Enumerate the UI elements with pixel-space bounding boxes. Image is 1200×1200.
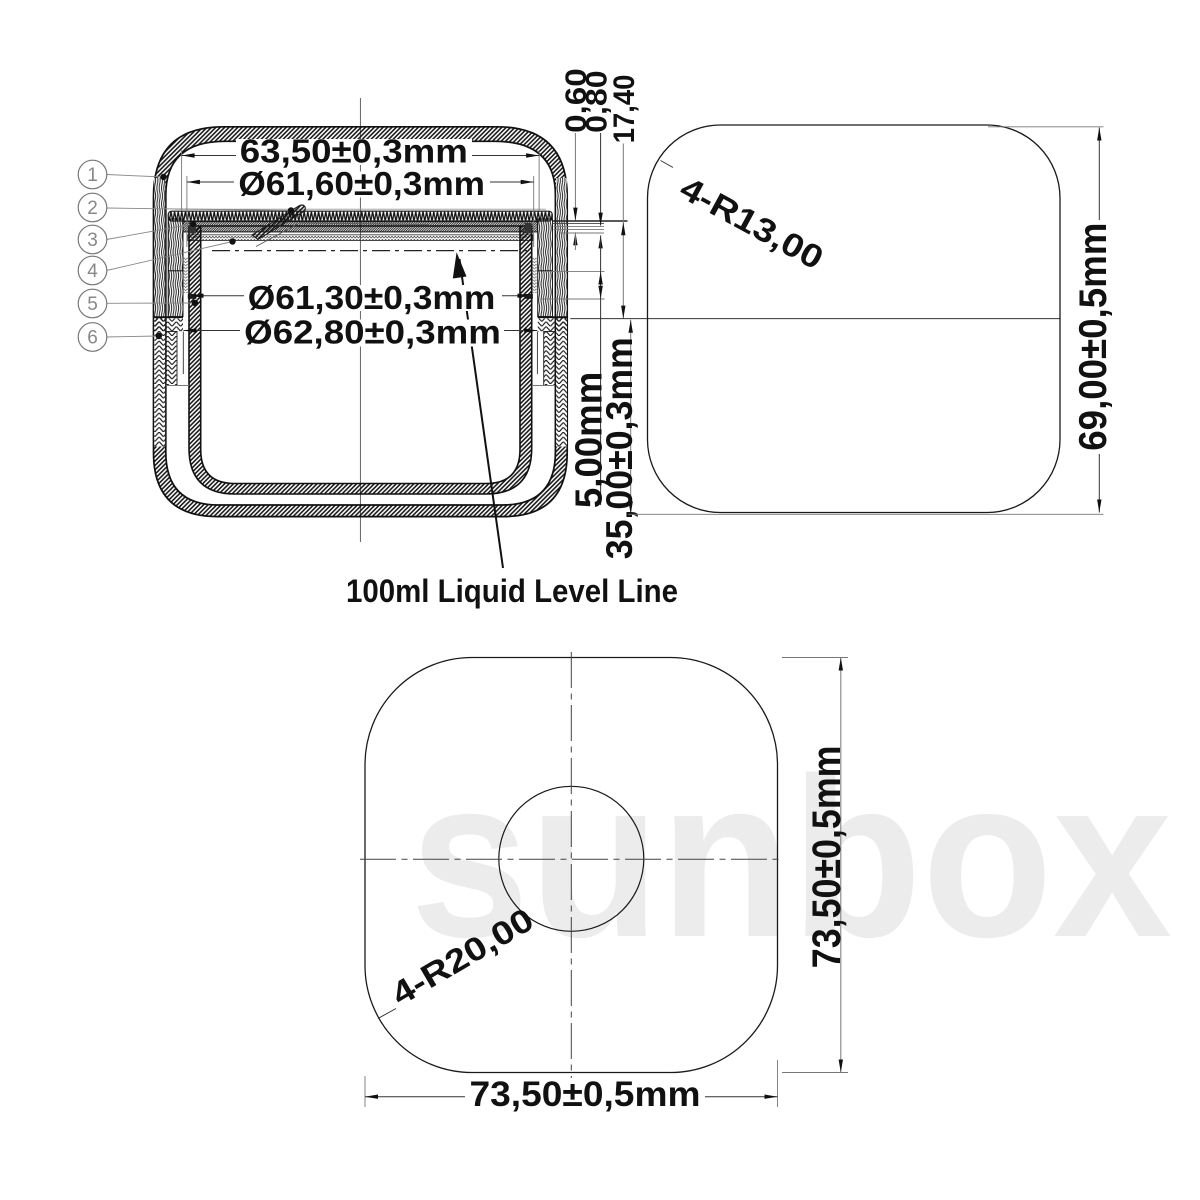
svg-text:Ø61,30±0,3mm: Ø61,30±0,3mm [248, 279, 495, 316]
svg-text:100ml Liquid Level Line: 100ml Liquid Level Line [346, 573, 678, 609]
svg-text:4: 4 [87, 261, 98, 282]
svg-text:17,40: 17,40 [608, 75, 641, 144]
svg-text:1: 1 [87, 165, 98, 186]
svg-text:69,00±0,5mm: 69,00±0,5mm [1072, 223, 1115, 451]
svg-text:35,00±0,3mm: 35,00±0,3mm [599, 337, 640, 559]
svg-text:73,50±0,5mm: 73,50±0,5mm [470, 1075, 701, 1114]
svg-text:6: 6 [87, 328, 98, 349]
svg-text:Ø62,80±0,3mm: Ø62,80±0,3mm [244, 313, 501, 350]
svg-text:2: 2 [87, 198, 98, 219]
svg-text:sunbox: sunbox [410, 732, 1172, 985]
svg-text:Ø61,60±0,3mm: Ø61,60±0,3mm [238, 165, 485, 202]
svg-text:73,50±0,5mm: 73,50±0,5mm [805, 746, 849, 969]
svg-text:5: 5 [87, 294, 98, 315]
svg-text:3: 3 [87, 230, 98, 251]
